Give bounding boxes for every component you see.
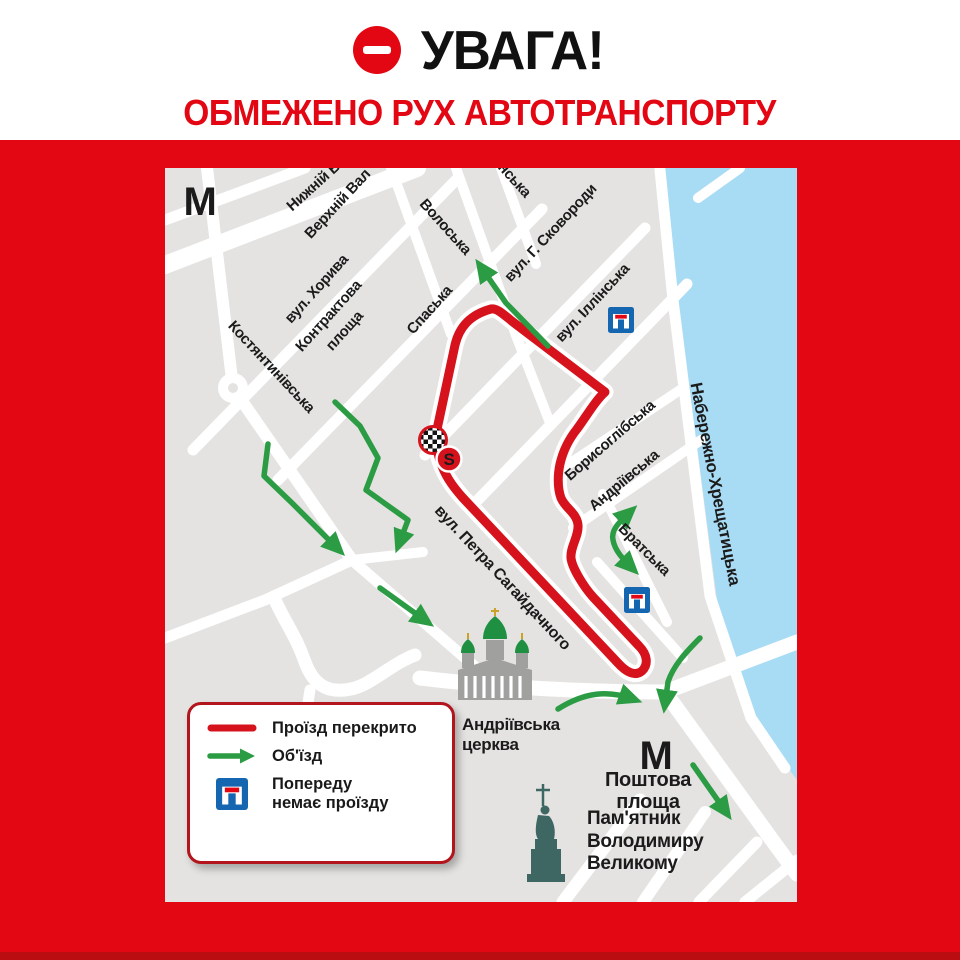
legend-row-closed: Проїзд перекрито xyxy=(202,719,442,738)
monument-label-1: Пам'ятник xyxy=(587,808,681,829)
legend-deadend-line1: Попереду xyxy=(272,775,352,793)
title-row: УВАГА! xyxy=(0,18,960,82)
start-letter: S xyxy=(443,450,454,469)
closed-route-legend-icon xyxy=(202,721,262,735)
metro-icon-kontraktova: М xyxy=(183,180,216,224)
detour-legend-icon xyxy=(202,747,262,765)
monument-label-2: Володимиру xyxy=(587,831,704,852)
legend-row-detour: Об'їзд xyxy=(202,747,442,766)
legend-closed-label: Проїзд перекрито xyxy=(272,719,417,738)
church-label-2: церква xyxy=(462,735,520,754)
deadend-legend-icon xyxy=(202,778,262,810)
subtitle-row: ОБМЕЖЕНО РУХ АВТОТРАНСПОРТУ xyxy=(0,92,960,134)
legend-deadend-label: Попереду немає проїзду xyxy=(272,775,389,813)
deadend-sign-bratska xyxy=(624,587,650,613)
monument-label-3: Великому xyxy=(587,853,678,874)
legend-detour-label: Об'їзд xyxy=(272,747,322,766)
bottom-edge-strip xyxy=(0,952,960,960)
legend-row-deadend: Попереду немає проїзду xyxy=(202,775,442,813)
street-map: S М М Нижній Вал Верхній Вал Волоська нс… xyxy=(165,168,797,902)
header: УВАГА! ОБМЕЖЕНО РУХ АВТОТРАНСПОРТУ xyxy=(0,0,960,140)
no-entry-icon xyxy=(353,26,401,74)
deadend-sign-illinska xyxy=(608,307,634,333)
page-subtitle: ОБМЕЖЕНО РУХ АВТОТРАНСПОРТУ xyxy=(184,92,777,134)
traffic-restriction-poster: УВАГА! ОБМЕЖЕНО РУХ АВТОТРАНСПОРТУ xyxy=(0,0,960,960)
poshtova-label-1: Поштова xyxy=(605,769,692,791)
page-title: УВАГА! xyxy=(420,18,603,82)
church-label-1: Андріївська xyxy=(462,715,561,734)
legend-deadend-line2: немає проїзду xyxy=(272,794,389,812)
roundabout xyxy=(218,373,248,403)
legend: Проїзд перекрито Об'їзд Попереду xyxy=(187,702,455,864)
